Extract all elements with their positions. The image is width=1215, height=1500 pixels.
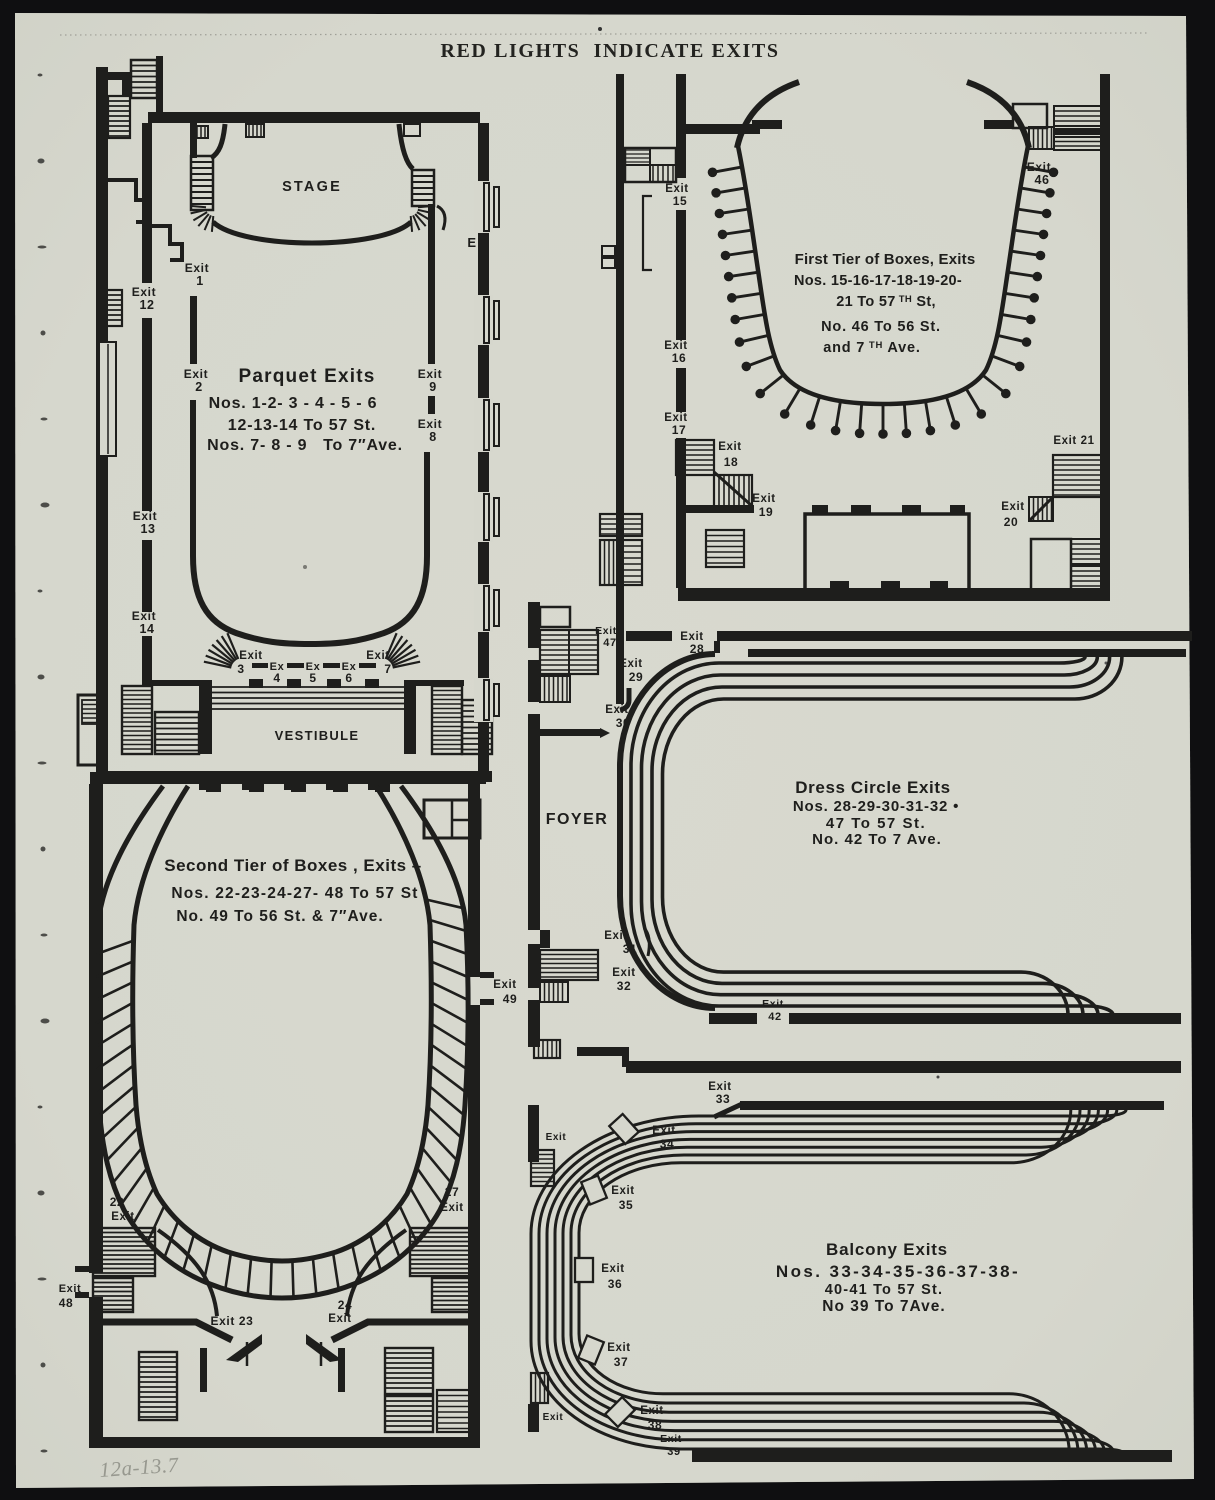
svg-text:40-41 To 57 St.: 40-41 To 57 St. [825,1282,943,1298]
svg-text:First Tier of Boxes, Exits: First Tier of Boxes, Exits [795,251,976,268]
svg-text:29: 29 [629,670,644,684]
svg-text:Exit: Exit [418,417,442,431]
svg-text:No. 42 To 7 Ave.: No. 42 To 7 Ave. [812,831,942,848]
svg-text:Nos. 1-2- 3 - 4 - 5 - 6: Nos. 1-2- 3 - 4 - 5 - 6 [209,395,378,412]
svg-text:Exit: Exit [762,998,784,1010]
svg-text:6: 6 [345,671,352,685]
svg-text:4: 4 [273,671,280,685]
svg-text:Exit: Exit [239,650,263,662]
svg-text:21 To 57 TH St,: 21 To 57 TH St, [836,294,936,310]
svg-text:Exit: Exit [607,1342,631,1354]
svg-text:Exit: Exit [184,367,208,381]
svg-text:22: 22 [110,1195,125,1209]
svg-text:9: 9 [429,380,437,394]
svg-text:7: 7 [384,662,391,676]
svg-text:Exit 23: Exit 23 [211,1314,254,1328]
svg-text:13: 13 [140,522,155,536]
svg-text:38: 38 [648,1418,663,1432]
svg-text:27: 27 [445,1185,460,1199]
svg-text:Exit: Exit [111,1211,135,1223]
svg-text:2: 2 [195,380,203,394]
svg-text:46: 46 [1034,173,1049,187]
svg-text:VESTIBULE: VESTIBULE [275,728,360,743]
svg-text:18: 18 [724,455,739,469]
svg-text:Nos. 15-16-17-18-19-20-: Nos. 15-16-17-18-19-20- [794,273,962,289]
svg-text:17: 17 [672,423,687,437]
svg-text:Exit: Exit [718,441,742,453]
svg-text:Exit: Exit [418,367,442,381]
svg-text:19: 19 [759,505,774,519]
svg-text:20: 20 [1004,515,1019,529]
svg-text:39: 39 [667,1446,680,1458]
svg-text:Exit: Exit [652,1125,676,1137]
svg-text:Exit: Exit [660,1433,682,1445]
svg-text:Exit: Exit [185,261,209,275]
svg-text:Exit: Exit [493,979,517,991]
svg-text:49: 49 [503,992,518,1006]
svg-text:Dress Circle Exits: Dress Circle Exits [795,778,950,797]
svg-text:Exit: Exit [752,493,776,505]
svg-text:No 39 To 7Ave.: No 39 To 7Ave. [822,1298,945,1315]
svg-text:No. 49 To 56 St. & 7″Ave.: No. 49 To 56 St. & 7″Ave. [176,908,383,925]
svg-text:42: 42 [768,1011,781,1023]
svg-text:Second Tier of Boxes , Exit: Second Tier of Boxes , Exits – [164,856,422,875]
svg-text:Exit: Exit [132,609,156,623]
svg-text:34: 34 [660,1137,675,1151]
svg-text:Exit: Exit [1001,501,1025,513]
svg-text:Exit: Exit [366,650,390,662]
svg-text:5: 5 [309,671,316,685]
svg-text:Exit: Exit [133,509,157,523]
svg-text:No. 46 To 56 St.: No. 46 To 56 St. [821,319,941,335]
svg-text:35: 35 [619,1198,634,1212]
svg-text:Exit: Exit [619,658,643,670]
svg-text:STAGE: STAGE [282,179,342,195]
svg-text:48: 48 [59,1296,74,1310]
svg-text:Exit: Exit [601,1263,625,1275]
svg-text:Exit: Exit [546,1132,567,1143]
svg-text:Exit: Exit [440,1202,464,1214]
svg-text:8: 8 [429,430,437,444]
svg-text:47: 47 [603,637,616,649]
svg-text:Parquet Exits: Parquet Exits [238,366,375,387]
svg-text:12-13-14 To 57 St.: 12-13-14 To 57 St. [228,417,376,434]
svg-text:Exit: Exit [595,625,617,637]
svg-text:3: 3 [237,662,244,676]
svg-text:Nos. 7- 8 - 9 To 7″Ave.: Nos. 7- 8 - 9 To 7″Ave. [207,437,403,454]
svg-text:Nos. 22-23-24-27- 48 To 57 St: Nos. 22-23-24-27- 48 To 57 St [171,885,418,902]
svg-text:12: 12 [139,298,154,312]
svg-text:37: 37 [614,1355,629,1369]
svg-text:1: 1 [196,274,204,288]
svg-text:FOYER: FOYER [546,811,609,828]
svg-text:RED LIGHTS INDICATE EXITS: RED LIGHTS INDICATE EXITS [440,40,779,62]
svg-text:E: E [467,235,476,250]
svg-text:14: 14 [139,622,154,636]
svg-text:Nos. 28-29-30-31-32 •: Nos. 28-29-30-31-32 • [793,798,959,815]
svg-text:Exit: Exit [605,704,629,716]
svg-text:Nos. 33-34-35-36-37-38-: Nos. 33-34-35-36-37-38- [776,1262,1020,1281]
svg-text:Exit: Exit [132,285,156,299]
svg-text:32: 32 [617,979,632,993]
svg-text:Exit: Exit [543,1412,564,1423]
svg-text:Exit: Exit [640,1405,664,1417]
svg-text:Exit: Exit [328,1313,352,1325]
svg-text:Exit: Exit [612,967,636,979]
svg-text:Balcony Exits: Balcony Exits [826,1240,948,1259]
svg-text:Exit 21: Exit 21 [1053,435,1094,447]
svg-text:36: 36 [608,1277,623,1291]
svg-text:Exit: Exit [59,1283,82,1295]
svg-text:47 To 57 St.: 47 To 57 St. [826,815,926,832]
svg-text:16: 16 [672,351,687,365]
svg-text:Exit: Exit [611,1185,635,1197]
svg-text:15: 15 [673,194,688,208]
svg-text:Exit: Exit [1027,160,1051,174]
svg-text:33: 33 [716,1092,731,1106]
svg-text:24: 24 [338,1298,353,1312]
